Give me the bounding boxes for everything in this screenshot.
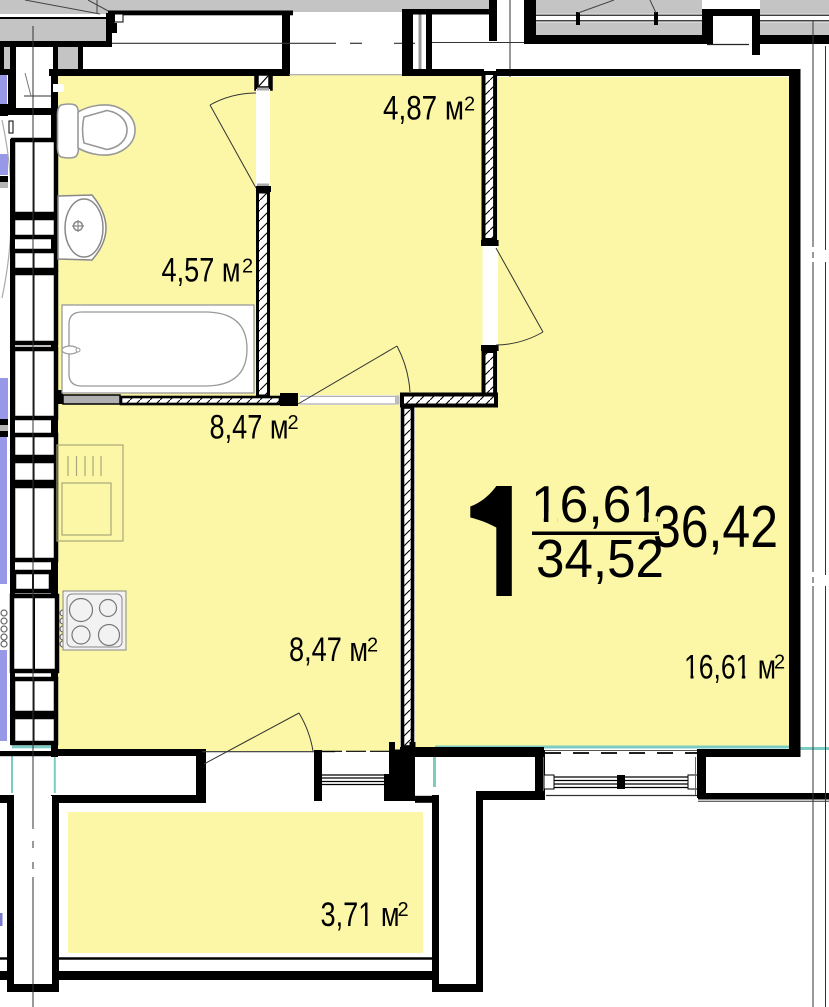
svg-text:2: 2 [367,635,378,657]
svg-text:36,42: 36,42 [653,494,778,560]
svg-text:16,61 м: 16,61 м [684,648,776,686]
svg-text:4,57 м: 4,57 м [162,252,241,290]
svg-text:2: 2 [242,256,253,278]
svg-text:2: 2 [288,412,299,434]
svg-text:4,87 м: 4,87 м [383,90,464,128]
svg-text:8,47 м: 8,47 м [210,409,289,447]
svg-text:2: 2 [398,899,409,921]
svg-text:2: 2 [774,652,785,674]
svg-text:8,47 м: 8,47 м [289,631,368,669]
svg-text:3,71 м: 3,71 м [321,896,400,934]
svg-text:16,61: 16,61 [531,476,660,534]
svg-text:2: 2 [464,94,475,116]
svg-text:34,52: 34,52 [536,529,664,589]
